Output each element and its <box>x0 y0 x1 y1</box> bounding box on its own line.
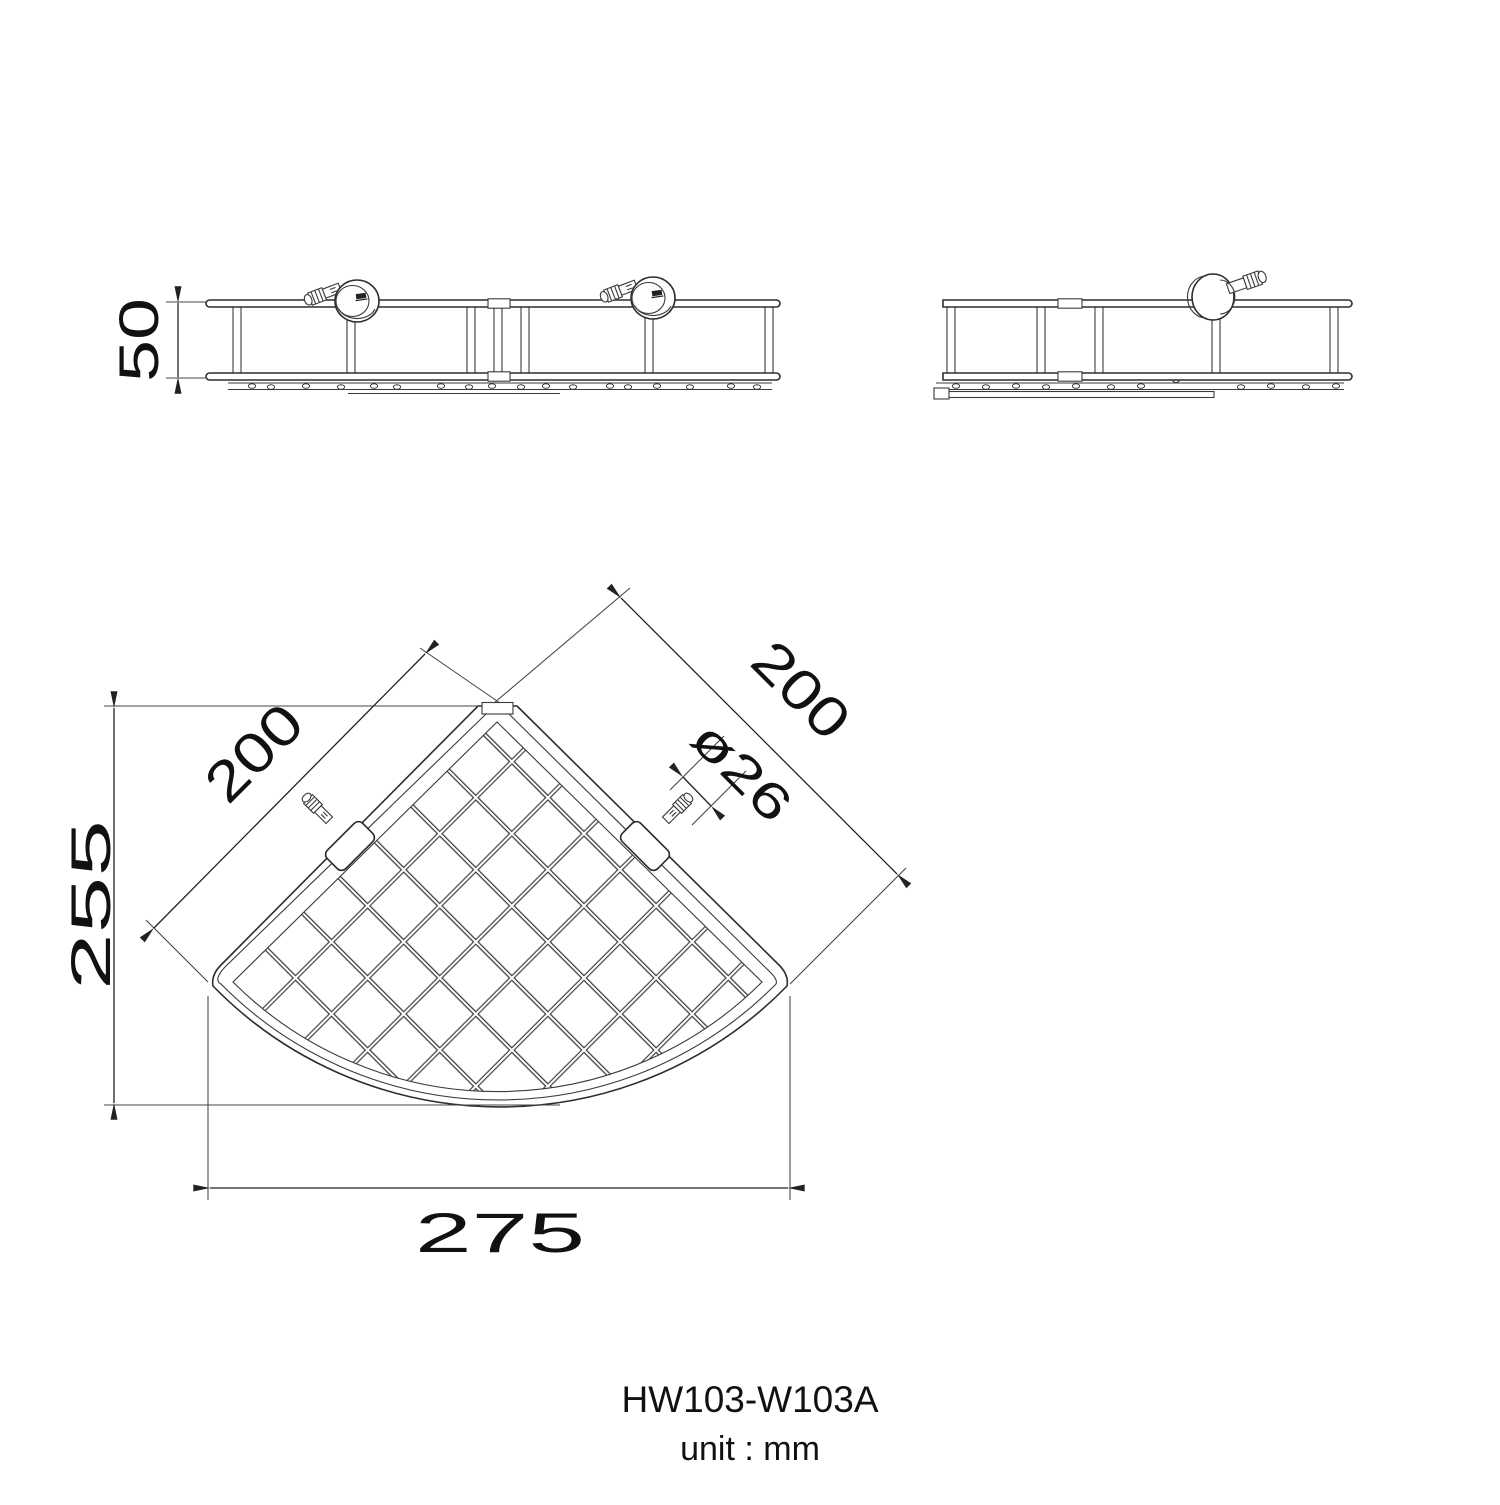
wire-end-dots <box>248 384 760 390</box>
rim-tip-sleeve <box>482 703 513 715</box>
front-rail-joint <box>488 299 510 308</box>
front-rail-joint <box>488 372 510 381</box>
front-posts <box>233 307 773 373</box>
model-number: HW103-W103A <box>621 1379 878 1420</box>
technical-drawing: 50 <box>0 0 1500 1500</box>
front-view: 50 <box>107 277 780 394</box>
wall-mount-bracket <box>1187 269 1268 320</box>
dim-label-edge-right: 200 <box>740 628 864 752</box>
unit-note: unit : mm <box>680 1430 820 1468</box>
side-posts <box>947 307 1338 373</box>
wall-mount-bracket <box>303 280 379 322</box>
side-top-rail <box>943 300 1352 307</box>
mounting-screw-icon <box>1226 269 1268 295</box>
side-view <box>934 269 1352 399</box>
dim-label-bracket-dia: ø26 <box>680 710 803 833</box>
dimension-bracket-dia-26: ø26 <box>670 710 803 833</box>
wall-mount-bracket <box>599 277 675 319</box>
dim-label-width: 275 <box>415 1201 585 1264</box>
dim-label-depth: 255 <box>59 820 122 990</box>
wire-end-dots <box>952 384 1339 390</box>
side-bottom-rail <box>943 373 1352 380</box>
title-block: HW103-W103A unit : mm <box>621 1379 878 1468</box>
dimension-height-50: 50 <box>107 298 207 382</box>
front-mesh-edge <box>228 383 772 394</box>
wall-plate-disc <box>1192 274 1234 320</box>
plan-view: 200 200 ø26 255 275 <box>59 588 906 1264</box>
mounting-screw-icon <box>661 791 695 825</box>
side-rail-joint <box>1058 299 1082 308</box>
mounting-screw-icon <box>300 791 334 825</box>
side-rail-joint <box>1058 372 1082 381</box>
dim-label-height: 50 <box>107 298 170 382</box>
dim-label-edge-left: 200 <box>192 691 316 815</box>
